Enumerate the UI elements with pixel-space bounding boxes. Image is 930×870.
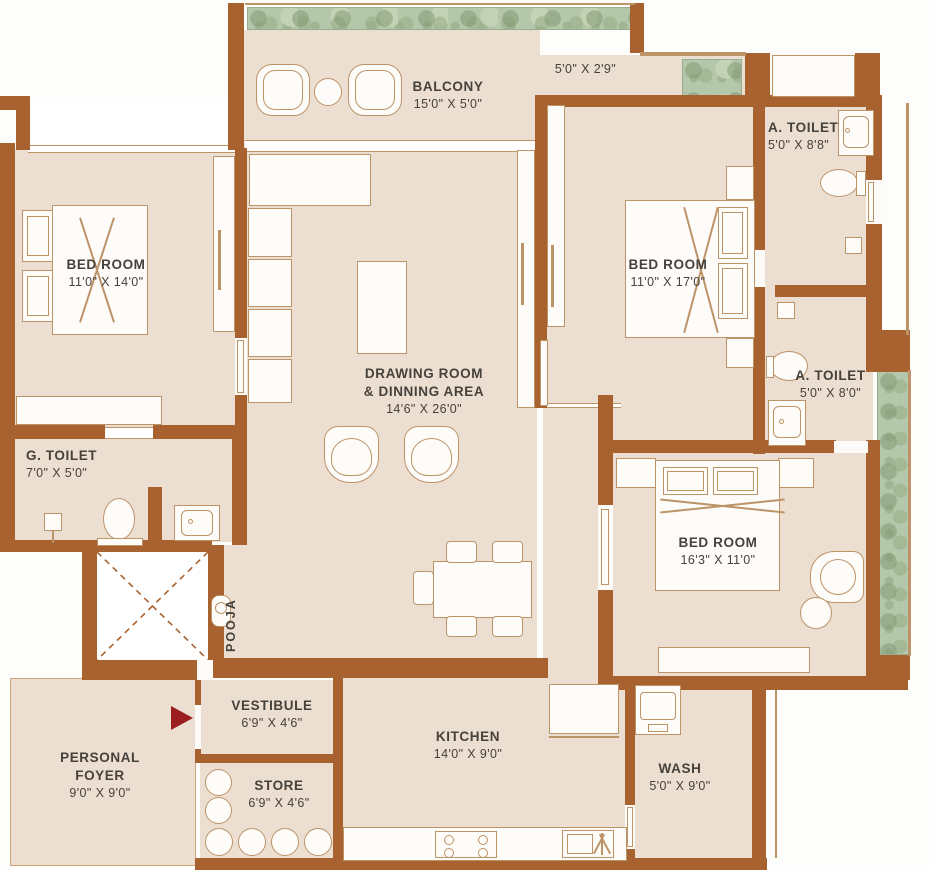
room-dims: 5'0" X 8'0" (800, 386, 861, 402)
faucet-dot (779, 419, 784, 424)
room-dims: 15'0" X 5'0" (414, 97, 483, 113)
wall (16, 96, 30, 150)
room-name: A. TOILET (768, 120, 838, 137)
label-side-balcony: 5'0" X 2'9" (538, 62, 633, 78)
wall (745, 53, 770, 107)
pooja-opening (197, 660, 213, 680)
shower-point (777, 302, 795, 319)
burner (478, 848, 488, 858)
wall (866, 330, 910, 372)
wall (866, 222, 882, 330)
room-dims: 16'3" X 11'0" (681, 553, 756, 569)
wall (212, 658, 548, 678)
right-planter-line (908, 370, 911, 656)
wall (535, 95, 772, 107)
wall (0, 143, 15, 552)
room-dims: 14'0" X 9'0" (434, 747, 503, 763)
planter-top (247, 7, 633, 30)
headboard-shelf (616, 458, 656, 488)
store-jar (271, 828, 299, 856)
room-name: BALCONY (413, 79, 484, 96)
panel-handle (521, 243, 524, 305)
room-dims: 14'6" X 26'0" (386, 402, 462, 418)
wall (232, 428, 247, 545)
wardrobe (547, 105, 565, 327)
label-guest-toilet: G. TOILET 7'0" X 5'0" (26, 448, 121, 482)
refrigerator-line (549, 736, 619, 738)
washing-machine-panel (648, 724, 668, 732)
balcony-edge-line (245, 3, 635, 5)
label-store: STORE 6'9" X 4'6" (223, 778, 335, 812)
wall (195, 678, 201, 705)
wall (235, 148, 247, 338)
wc-tank (856, 171, 866, 196)
room-name: VESTIBULE (231, 698, 312, 715)
floor-plan: BALCONY 15'0" X 5'0" 5'0" X 2'9" BED ROO… (0, 0, 930, 870)
wardrobe-handle (551, 245, 554, 307)
balcony-chair-cushion (263, 70, 303, 110)
burner (444, 848, 454, 858)
sofa-unit (248, 208, 292, 257)
room-name: PERSONAL (60, 750, 140, 767)
shower-point (44, 513, 62, 531)
armchair-cushion (411, 438, 452, 476)
room-dims: 6'9" X 4'6" (248, 796, 309, 812)
dining-chair (413, 571, 434, 605)
wc (820, 169, 858, 197)
room-name: BED ROOM (678, 535, 757, 552)
label-attached-toilet-top: A. TOILET 5'0" X 8'8" (768, 120, 863, 154)
wc-tank (766, 356, 774, 378)
balcony-table (314, 78, 342, 106)
side-round-table (800, 597, 832, 629)
label-kitchen: KITCHEN 14'0" X 9'0" (404, 729, 532, 763)
shower-point (845, 237, 862, 254)
side-table (726, 166, 754, 200)
wc-base (97, 538, 143, 546)
pillow-inner (722, 212, 743, 254)
wall (195, 754, 335, 763)
low-unit (658, 647, 810, 673)
store-jar (205, 828, 233, 856)
washing-machine-drum (640, 692, 676, 720)
store-jar (238, 828, 266, 856)
room-dims: 6'9" X 4'6" (241, 716, 302, 732)
room-dims: 11'0" X 14'0" (69, 275, 144, 291)
wall (866, 655, 910, 680)
wardrobe (213, 156, 235, 332)
sliding-wardrobe-panel (517, 150, 535, 408)
room-dims: 7'0" X 5'0" (26, 466, 87, 482)
dining-chair (492, 541, 523, 563)
pillow-inner (717, 471, 754, 491)
pillow-inner (27, 216, 49, 256)
side-table (726, 338, 754, 368)
duct (772, 55, 855, 97)
room-name: FOYER (75, 768, 125, 785)
pillow-inner (667, 471, 704, 491)
room-dims: 5'0" X 9'0" (649, 779, 710, 795)
dining-table (433, 561, 532, 618)
bedroom-left-window (28, 145, 236, 153)
armchair-cushion (331, 438, 372, 476)
room-name: STORE (254, 778, 303, 795)
door-panel (868, 182, 874, 222)
wall (752, 683, 766, 866)
room-name: BED ROOM (66, 257, 145, 274)
sofa-unit (248, 259, 292, 307)
room-name: DRAWING ROOM (365, 366, 483, 383)
corridor-floor (543, 405, 603, 680)
faucet-dot (188, 519, 193, 524)
burner (478, 835, 488, 845)
dining-chair (492, 616, 523, 637)
outside-boundary-line (775, 690, 777, 858)
wall (630, 3, 644, 53)
washbasin-bowl (773, 406, 801, 438)
bedroom-right-sliding-door (540, 340, 548, 406)
wall (148, 487, 162, 543)
planter-right (877, 370, 909, 655)
wall (333, 678, 343, 866)
label-pooja: POOJA (224, 576, 238, 652)
room-dims: 9'0" X 9'0" (69, 786, 130, 802)
guest-toilet-door (105, 427, 153, 439)
room-dims: 11'0" X 17'0" (631, 275, 706, 291)
main-entrance-door (195, 705, 201, 749)
bench (16, 396, 162, 425)
wall (82, 660, 200, 680)
entrance-arrow-icon (171, 706, 193, 730)
balcony-window (245, 140, 535, 152)
right-exterior-line (906, 103, 909, 335)
label-bedroom-right: BED ROOM 11'0" X 17'0" (602, 257, 734, 291)
label-personal-foyer: PERSONAL FOYER 9'0" X 9'0" (40, 750, 160, 801)
bedroom-left-door-panel (237, 340, 244, 393)
lift-duct-cross-icon (97, 552, 208, 660)
wall (775, 285, 875, 297)
sofa-unit (248, 309, 292, 357)
label-attached-toilet-mid: A. TOILET 5'0" X 8'0" (778, 368, 883, 402)
wall (598, 588, 613, 678)
wall (228, 3, 244, 150)
sofa-unit (248, 359, 292, 403)
label-drawing-room: DRAWING ROOM & DINNING AREA 14'6" X 26'0… (356, 366, 492, 417)
store-jar (304, 828, 332, 856)
room-name: & DINNING AREA (364, 384, 484, 401)
shower-stem (52, 531, 54, 543)
dining-chair (446, 541, 477, 563)
ledge-edge-line (640, 52, 746, 56)
label-bedroom-left: BED ROOM 11'0" X 14'0" (40, 257, 172, 291)
burner (444, 835, 454, 845)
label-balcony: BALCONY 15'0" X 5'0" (383, 79, 513, 113)
room-dims: 5'0" X 8'8" (768, 138, 829, 154)
armchair-cushion (820, 559, 856, 595)
room-name: KITCHEN (436, 729, 500, 746)
label-bedroom-bottom: BED ROOM 16'3" X 11'0" (652, 535, 784, 569)
label-wash: WASH 5'0" X 9'0" (624, 761, 736, 795)
label-vestibule: VESTIBULE 6'9" X 4'6" (212, 698, 332, 732)
planter-backing (22, 98, 238, 150)
room-name: A. TOILET (795, 368, 865, 385)
sink-bowl (567, 834, 593, 854)
bedroom-bottom-door-panel (601, 509, 609, 585)
room-name: POOJA (224, 598, 238, 652)
washbasin-bowl (181, 510, 213, 536)
dining-chair (446, 616, 477, 637)
planter-ledge (682, 59, 742, 99)
wall (15, 425, 105, 439)
wall (866, 440, 880, 658)
room-name: BED ROOM (628, 257, 707, 274)
room-dims: 5'0" X 2'9" (555, 62, 616, 78)
refrigerator (549, 684, 619, 734)
room-name: G. TOILET (26, 448, 97, 465)
room-name: WASH (659, 761, 702, 778)
wardrobe-handle (218, 230, 221, 290)
sofa (249, 154, 371, 206)
headboard-shelf (778, 458, 814, 488)
wc (103, 498, 135, 540)
wash-door-panel (627, 807, 633, 847)
center-table (357, 261, 407, 354)
toilet-mid-door (834, 441, 868, 453)
